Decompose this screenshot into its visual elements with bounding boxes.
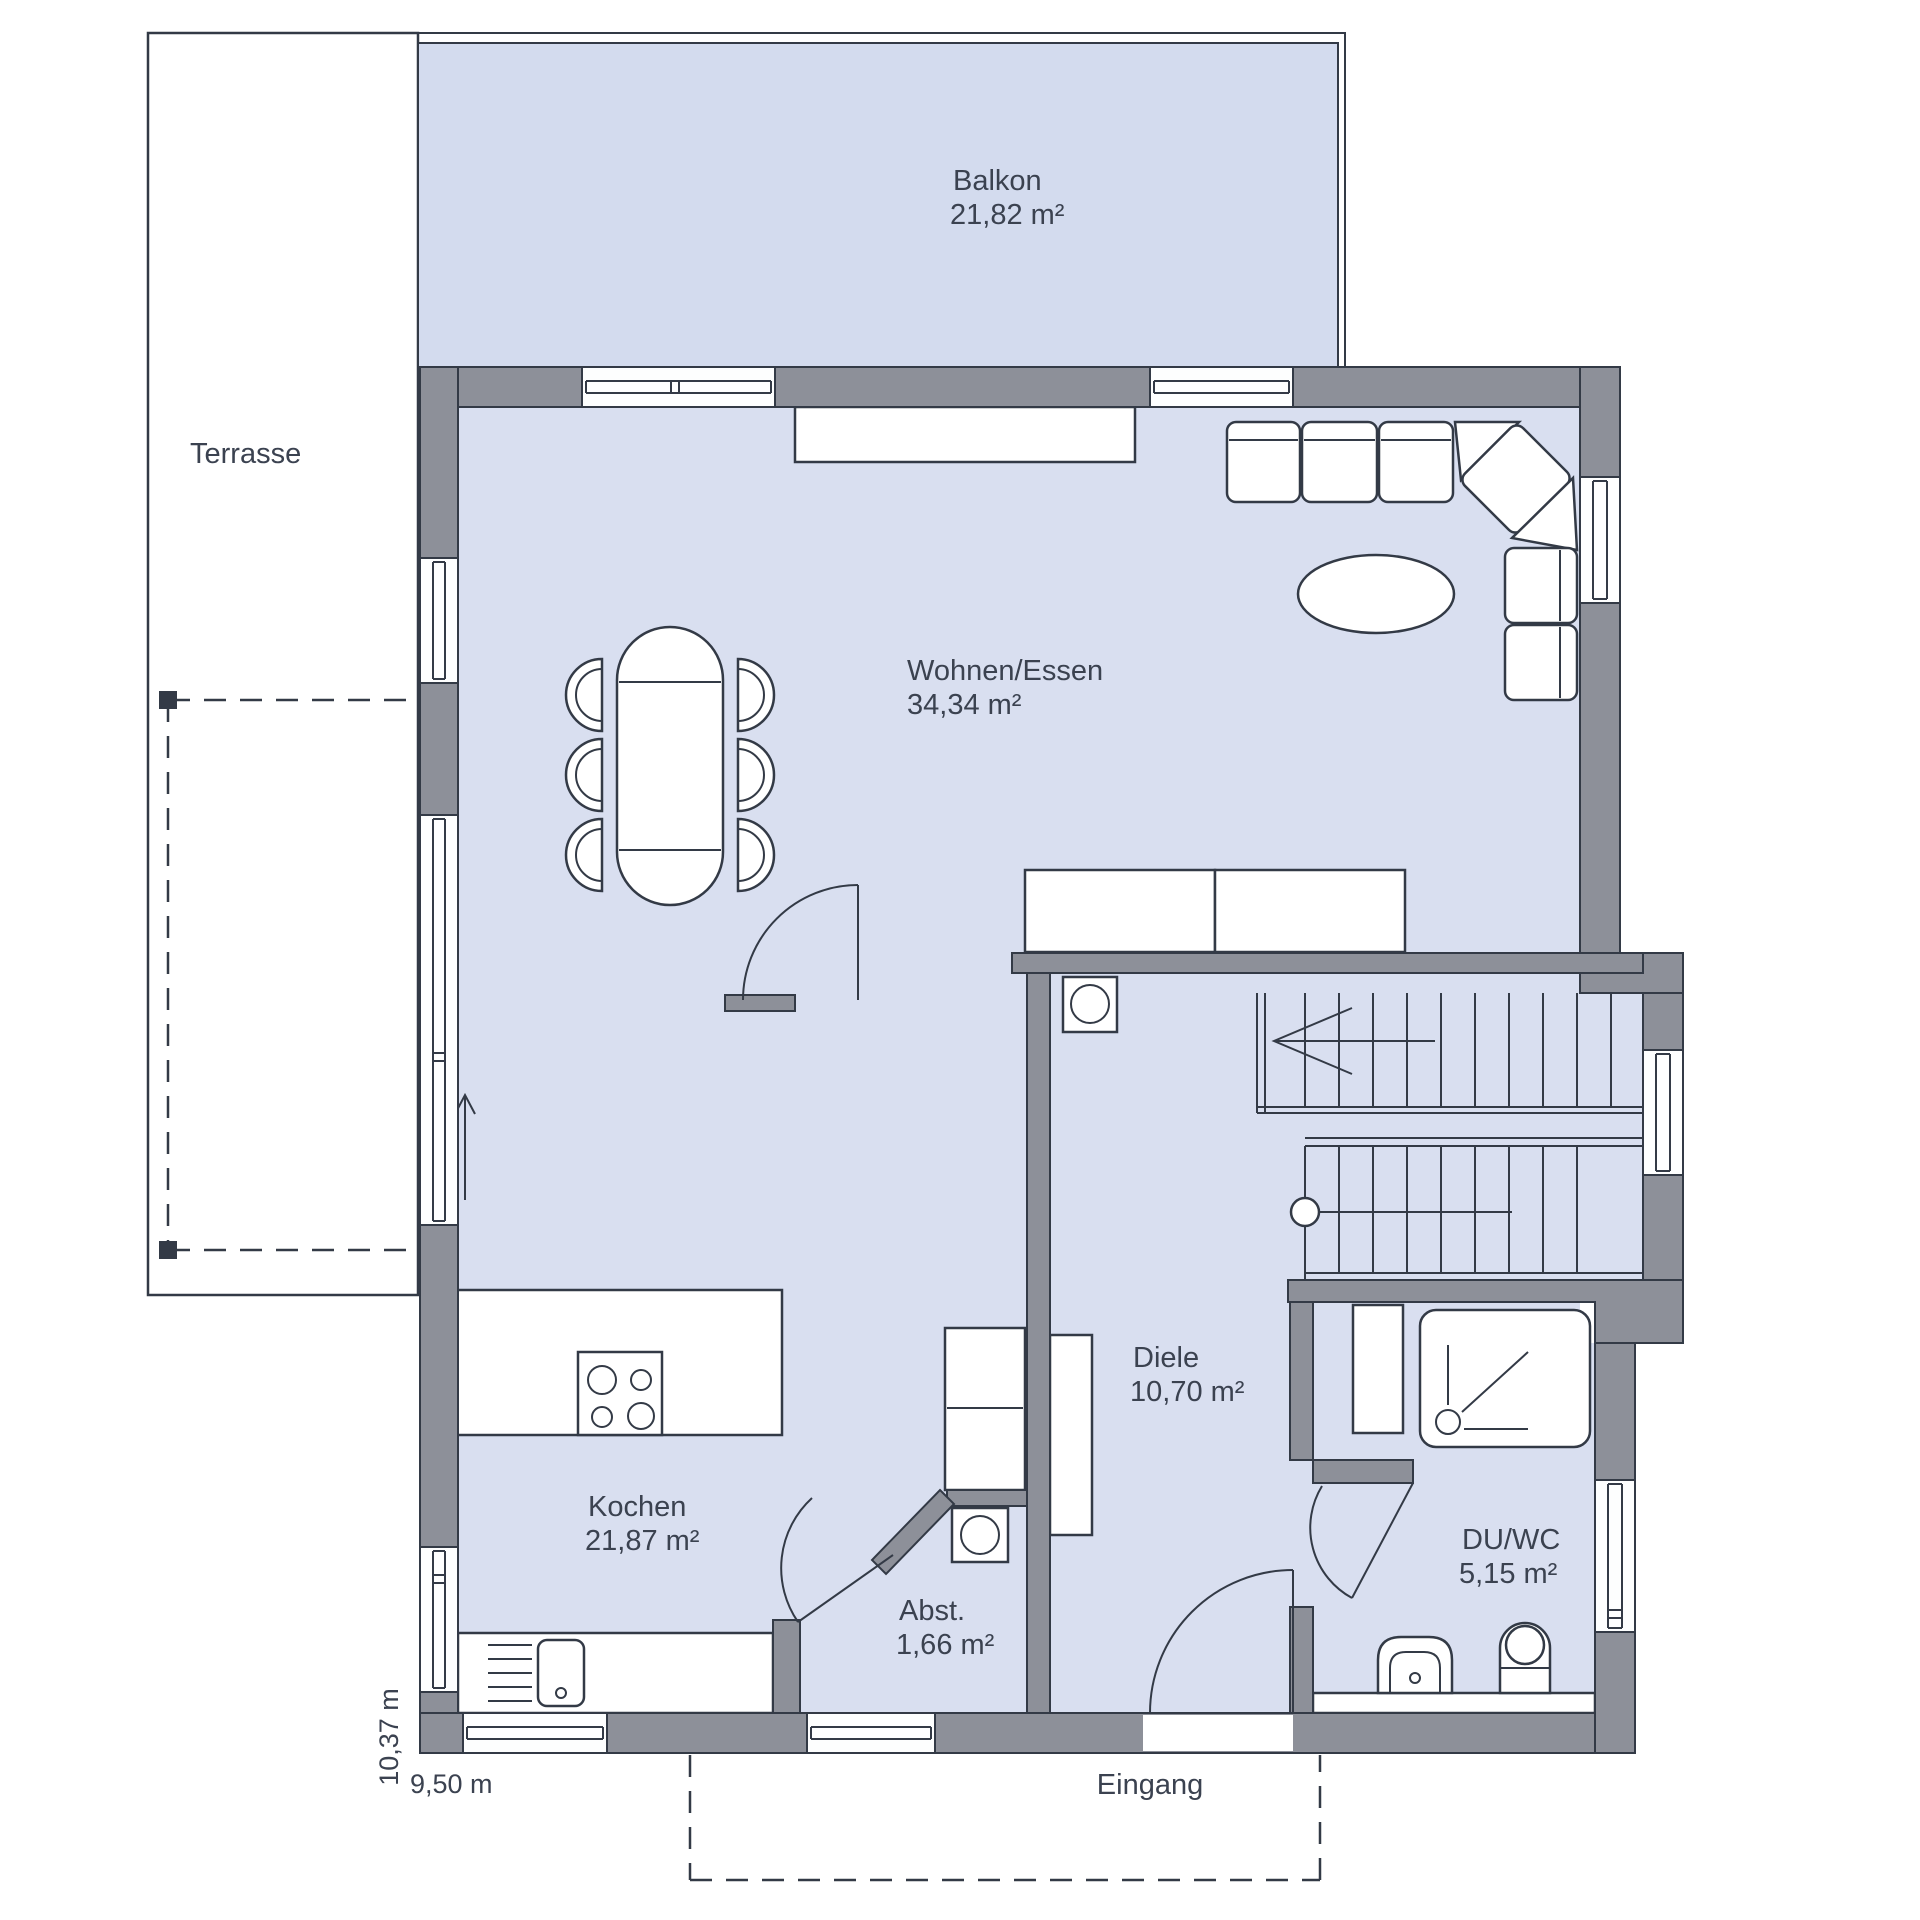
pergola-post-icon xyxy=(159,691,177,709)
dining-table-group xyxy=(566,627,774,905)
floor-plan-canvas: Terrasse Balkon 21,82 m² Wohnen/Essen 34… xyxy=(0,0,1920,1920)
sink-basin xyxy=(538,1640,584,1706)
wall-kitchen-stub xyxy=(773,1620,800,1713)
pergola-post-icon xyxy=(159,1241,177,1259)
sideboard xyxy=(1025,870,1215,952)
wall-hall-west xyxy=(1027,973,1050,1713)
tv-lowboard xyxy=(795,407,1135,462)
window xyxy=(1643,1050,1683,1175)
window xyxy=(807,1713,935,1753)
window xyxy=(1150,367,1293,407)
entrance-porch-dashed xyxy=(690,1755,1320,1880)
balcony-area: 21,82 m² xyxy=(950,199,1065,231)
entrance-door-gap xyxy=(1143,1715,1293,1751)
window xyxy=(463,1713,607,1753)
kitchen-island xyxy=(456,1290,782,1435)
shower-tray xyxy=(1420,1310,1590,1447)
sofa-section xyxy=(1505,625,1577,700)
hall-wardrobe xyxy=(1050,1335,1092,1535)
window xyxy=(420,558,458,683)
washbasin xyxy=(1378,1637,1452,1693)
sofa-section xyxy=(1302,422,1377,502)
room-area-abst: 1,66 m² xyxy=(896,1629,995,1661)
room-area-kochen: 21,87 m² xyxy=(585,1525,700,1557)
kitchen-counter xyxy=(458,1633,773,1713)
room-label-duwc: DU/WC xyxy=(1462,1524,1560,1556)
room-label-kochen: Kochen xyxy=(588,1491,686,1523)
wall-passage-stub xyxy=(725,995,795,1011)
bath-cabinet xyxy=(1353,1305,1403,1433)
wall-right-living xyxy=(1580,367,1620,973)
window xyxy=(1595,1480,1635,1632)
room-area-diele: 10,70 m² xyxy=(1130,1376,1245,1408)
room-area-wohnen: 34,34 m² xyxy=(907,689,1022,721)
stair-newel-post xyxy=(1291,1198,1319,1226)
coffee-table xyxy=(1298,555,1454,633)
wall-abst-top xyxy=(947,1490,1027,1506)
sofa-section xyxy=(1505,548,1577,623)
terrace-area xyxy=(148,33,418,1295)
room-label-wohnen: Wohnen/Essen xyxy=(907,655,1103,687)
vanity-ledge xyxy=(1313,1693,1595,1713)
toilet xyxy=(1500,1623,1550,1693)
window xyxy=(582,367,775,407)
room-label-diele: Diele xyxy=(1133,1342,1199,1374)
toilet-bowl xyxy=(1506,1626,1544,1664)
dimension-width: 9,50 m xyxy=(410,1769,493,1799)
terrace-label: Terrasse xyxy=(190,438,301,470)
shower xyxy=(1420,1310,1590,1447)
balcony-area xyxy=(418,43,1338,367)
cooktop xyxy=(578,1352,662,1435)
wall-hall-north xyxy=(1012,953,1643,973)
wall-duwc-west-upper xyxy=(1290,1302,1313,1460)
window xyxy=(420,815,458,1225)
window xyxy=(1580,477,1620,603)
entrance-label: Eingang xyxy=(1097,1769,1203,1801)
balcony-label: Balkon xyxy=(953,165,1042,197)
room-label-abst: Abst. xyxy=(899,1595,965,1627)
window xyxy=(420,1547,458,1692)
floor-plan-page: Terrasse Balkon 21,82 m² Wohnen/Essen 34… xyxy=(0,0,1920,1920)
room-area-duwc: 5,15 m² xyxy=(1459,1558,1558,1590)
wall-duwc-jamb xyxy=(1313,1460,1413,1483)
dimension-height: 10,37 m xyxy=(374,1688,404,1786)
sideboard xyxy=(1215,870,1405,952)
sofa-section xyxy=(1227,422,1300,502)
sofa-section xyxy=(1379,422,1453,502)
dining-table xyxy=(617,627,723,905)
